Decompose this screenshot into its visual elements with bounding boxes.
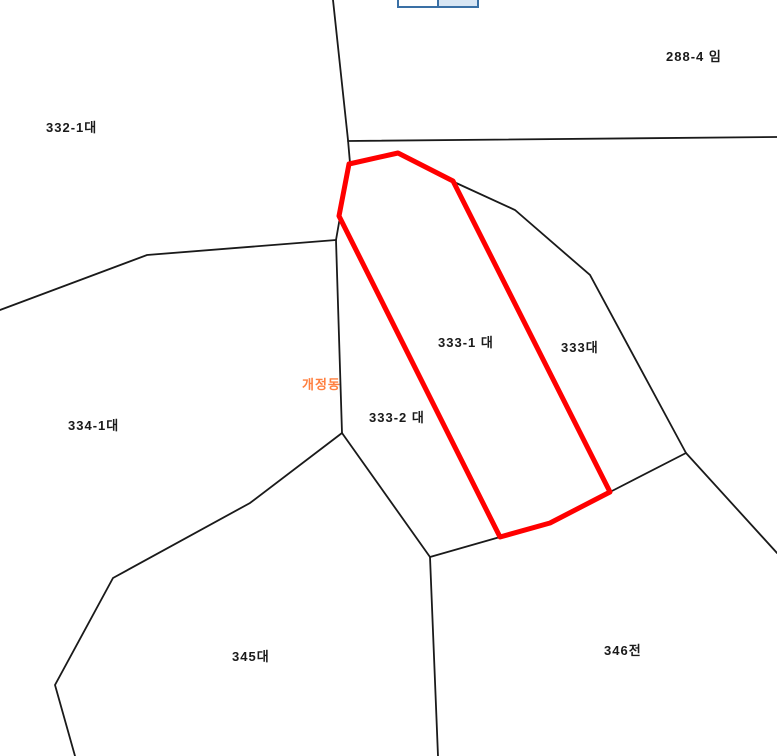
toolbar-clipped (397, 0, 479, 8)
parcel-label-346: 346전 (604, 644, 642, 658)
parcel-label-333: 333대 (561, 341, 599, 355)
toolbar-button-right[interactable] (437, 0, 479, 8)
parcel-label-333-2: 333-2 대 (369, 411, 425, 425)
toolbar-button-left[interactable] (397, 0, 439, 8)
cadastral-map-canvas[interactable] (0, 0, 777, 756)
map-viewport[interactable]: 332-1대 288-4 임 333-1 대 333대 333-2 대 334-… (0, 0, 777, 756)
parcel-boundaries (0, 0, 777, 756)
district-label: 개정동 (302, 378, 341, 392)
parcel-label-333-1: 333-1 대 (438, 336, 494, 350)
parcel-label-345: 345대 (232, 650, 270, 664)
parcel-label-332-1: 332-1대 (46, 121, 97, 135)
parcel-label-288-4: 288-4 임 (666, 50, 722, 64)
parcel-label-334-1: 334-1대 (68, 419, 119, 433)
